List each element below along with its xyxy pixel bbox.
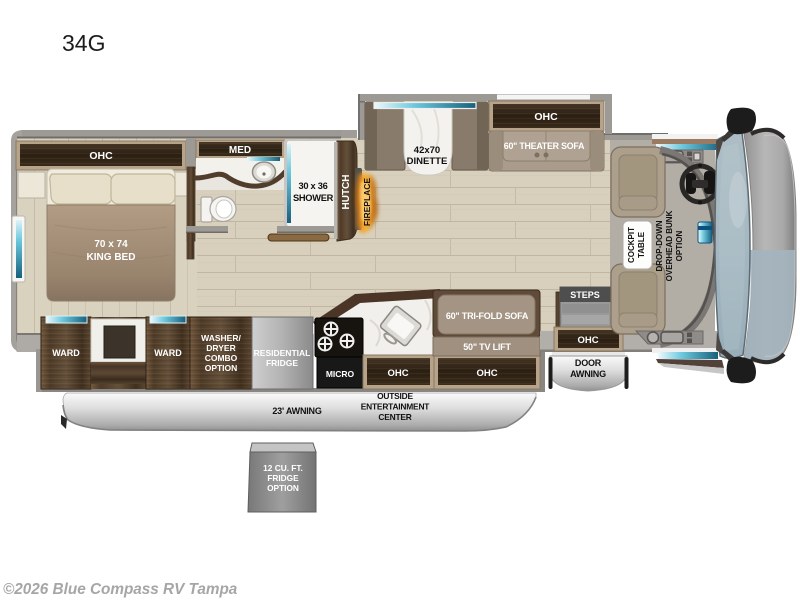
svg-text:OHC: OHC (387, 368, 408, 379)
svg-text:STEPS: STEPS (570, 290, 600, 300)
svg-text:OHC: OHC (534, 111, 558, 123)
svg-text:OPTION: OPTION (205, 363, 238, 373)
svg-text:OHC: OHC (476, 368, 497, 379)
svg-text:©2026 Blue Compass RV Tampa: ©2026 Blue Compass RV Tampa (3, 581, 238, 598)
svg-text:WARD: WARD (52, 348, 80, 358)
svg-text:FRIDGE: FRIDGE (266, 358, 298, 368)
svg-text:CENTER: CENTER (378, 412, 411, 422)
svg-text:OPTION: OPTION (267, 483, 299, 493)
svg-text:WASHER/: WASHER/ (201, 333, 241, 343)
svg-text:COCKPIT: COCKPIT (627, 227, 636, 263)
svg-text:FRIDGE: FRIDGE (267, 473, 299, 483)
svg-text:OVERHEAD BUNK: OVERHEAD BUNK (665, 210, 674, 281)
svg-text:OPTION: OPTION (675, 230, 684, 261)
svg-text:WARD: WARD (154, 348, 182, 358)
svg-text:34G: 34G (62, 30, 105, 56)
svg-text:DROP-DOWN: DROP-DOWN (655, 220, 664, 271)
svg-text:SHOWER: SHOWER (293, 193, 334, 203)
svg-text:MED: MED (229, 145, 251, 156)
svg-text:50" TV LIFT: 50" TV LIFT (463, 342, 511, 352)
svg-text:DINETTE: DINETTE (407, 156, 448, 167)
svg-text:30 x 36: 30 x 36 (299, 181, 328, 191)
svg-text:23' AWNING: 23' AWNING (272, 406, 322, 416)
svg-text:FIREPLACE: FIREPLACE (362, 178, 372, 227)
svg-text:60" TRI-FOLD SOFA: 60" TRI-FOLD SOFA (446, 311, 529, 321)
svg-text:OHC: OHC (577, 335, 598, 346)
svg-text:12 CU. FT.: 12 CU. FT. (263, 463, 303, 473)
svg-text:42x70: 42x70 (414, 145, 440, 156)
svg-text:OHC: OHC (89, 150, 113, 162)
svg-text:AWNING: AWNING (570, 369, 606, 379)
svg-text:RESIDENTIAL: RESIDENTIAL (254, 348, 311, 358)
svg-text:DRYER: DRYER (206, 343, 235, 353)
svg-text:TABLE: TABLE (637, 231, 646, 258)
svg-text:MICRO: MICRO (326, 369, 355, 379)
svg-text:ENTERTAINMENT: ENTERTAINMENT (361, 402, 431, 412)
svg-text:60" THEATER SOFA: 60" THEATER SOFA (504, 141, 585, 151)
svg-text:OUTSIDE: OUTSIDE (377, 391, 413, 401)
svg-text:HUTCH: HUTCH (341, 175, 352, 210)
svg-text:DOOR: DOOR (575, 358, 602, 368)
svg-text:COMBO: COMBO (205, 353, 238, 363)
